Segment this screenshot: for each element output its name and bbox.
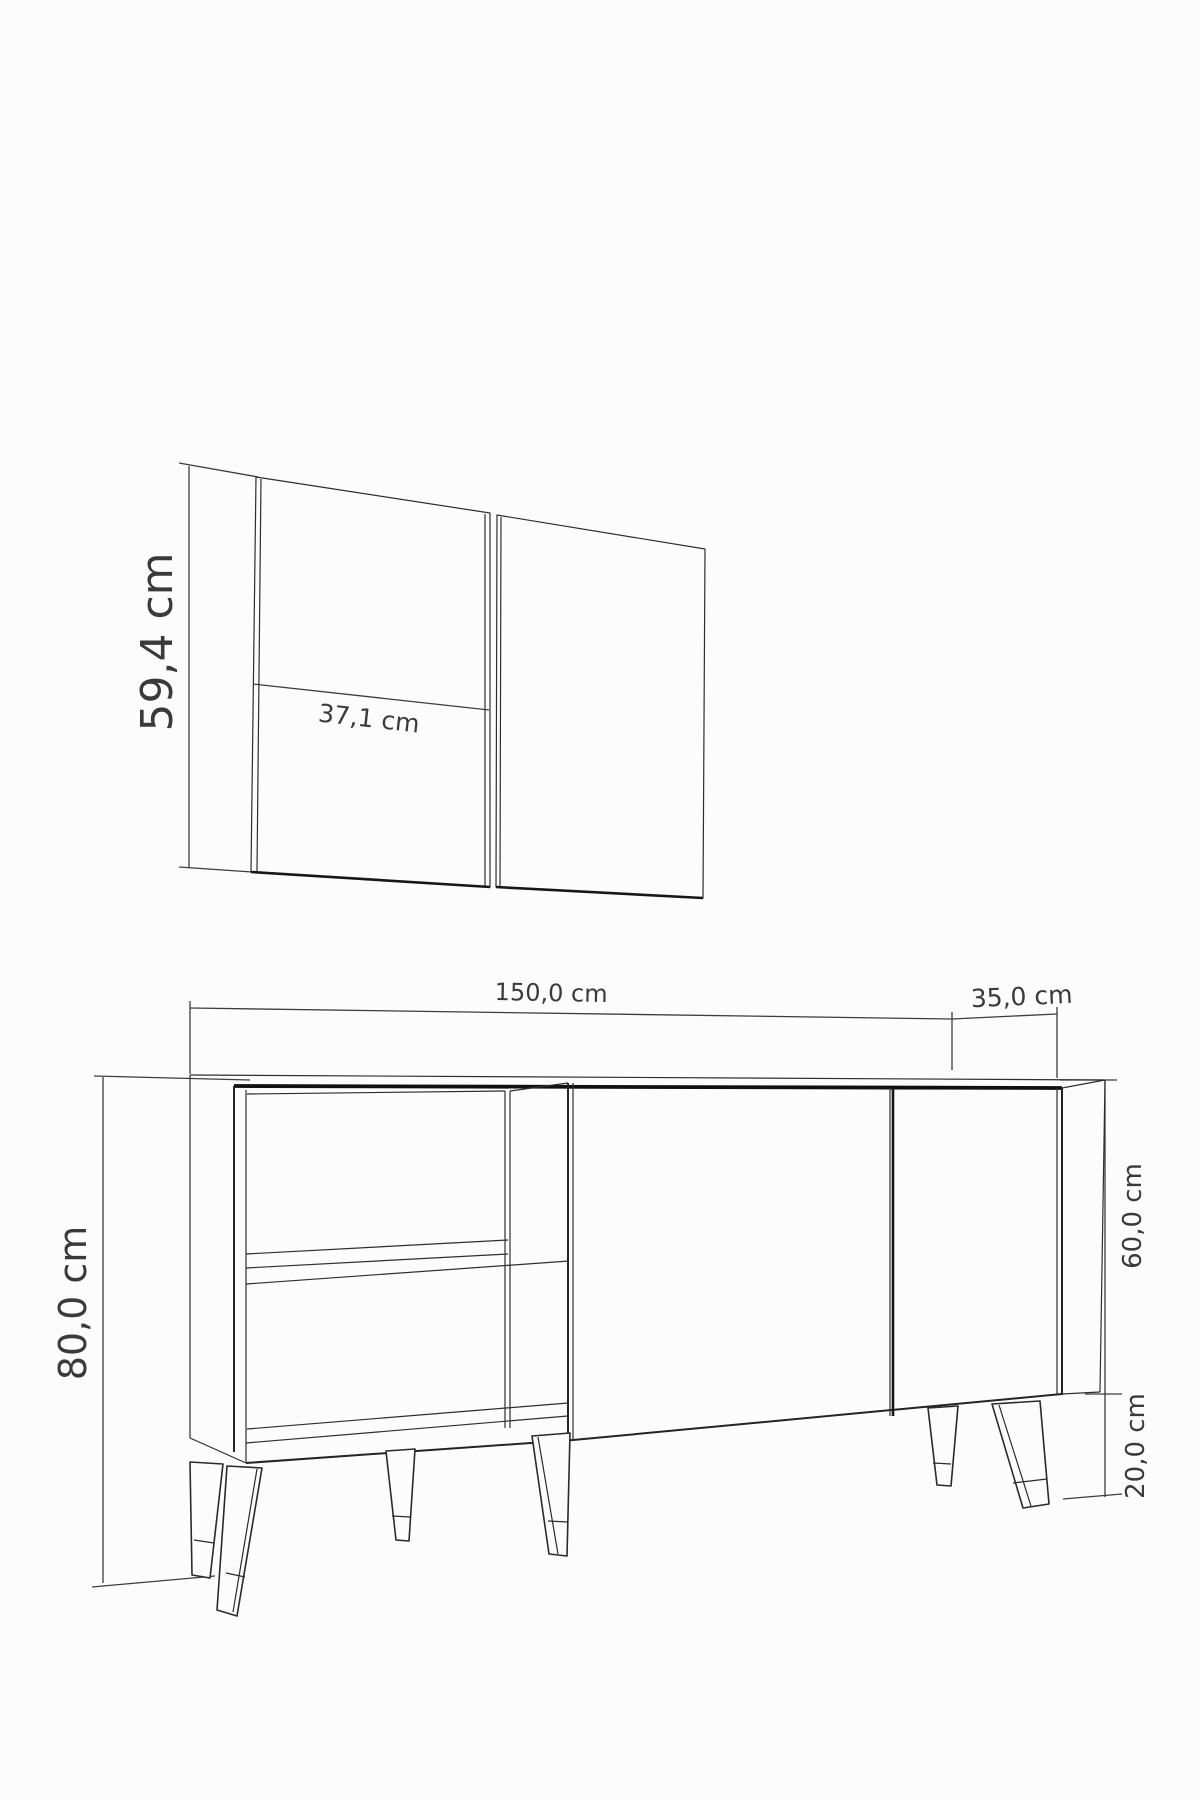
furniture-dimension-drawing: 59,4 cm 37,1 cm [0, 0, 1200, 1800]
cabinet-back-top-edge [190, 1075, 1105, 1080]
cabinet-depth-dimension-line [952, 1014, 1057, 1019]
cabinet-depth-dimension: 35,0 cm [952, 980, 1073, 1078]
shelf-top-back-line [246, 1240, 508, 1254]
cabinet-width-dimension-line [190, 1008, 952, 1019]
right-back-leg [928, 1406, 958, 1486]
cabinet-front-top-edge [234, 1086, 1062, 1088]
open-section-interior-top-line [247, 1091, 505, 1094]
total-height-tick-top [94, 1076, 250, 1080]
cabinet-depth-dimension-label: 35,0 cm [970, 980, 1073, 1013]
right-door-outline [496, 515, 705, 898]
leg-height-dimension: 20,0 cm [1063, 1393, 1151, 1499]
bottom-panel-back-line [247, 1403, 568, 1429]
middle-back-leg [386, 1449, 415, 1541]
carcass-height-dimension-label: 60,0 cm [1118, 1163, 1148, 1269]
bottom-panel-front-line [246, 1416, 568, 1443]
cabinet-back-right-edge [1100, 1080, 1105, 1392]
door-panels-front-view: 59,4 cm 37,1 cm [132, 463, 705, 898]
shelf-front-bottom-line [246, 1261, 569, 1284]
cabinet-total-height-dimension: 80,0 cm [51, 1076, 250, 1587]
panel-width-dimension-label: 37,1 cm [317, 699, 421, 739]
leg-height-dimension-label: 20,0 cm [1121, 1393, 1151, 1499]
technical-drawing-page: 59,4 cm 37,1 cm [0, 0, 1200, 1800]
left-door-bottom-edge [251, 872, 490, 887]
right-door-bottom-edge [496, 887, 703, 898]
back-left-leg [190, 1462, 223, 1578]
front-left-leg [217, 1466, 262, 1616]
cabinet-width-dimension: 150,0 cm [190, 978, 952, 1074]
middle-front-leg [532, 1433, 570, 1556]
cabinet-body [190, 1075, 1105, 1463]
leg-height-tick-bottom [1063, 1494, 1122, 1499]
left-door-left-edge-inner-line [257, 479, 261, 871]
left-door-panel: 37,1 cm [251, 477, 490, 887]
total-height-dimension-label: 80,0 cm [51, 1226, 95, 1381]
total-height-tick-bottom [92, 1576, 215, 1587]
left-side-bottom-edge [190, 1438, 246, 1463]
cabinet-width-dimension-label: 150,0 cm [494, 978, 607, 1008]
right-front-leg [992, 1401, 1049, 1508]
cabinet-top-right-corner-edge [1062, 1080, 1105, 1088]
panel-height-dimension: 59,4 cm [132, 463, 258, 872]
panel-height-dimension-label: 59,4 cm [132, 552, 183, 731]
cabinet-legs [190, 1401, 1049, 1616]
left-door-outline [251, 477, 490, 887]
right-door-left-edge-inner-line [500, 517, 501, 886]
right-door-panel [496, 515, 705, 898]
shelf-top-front-line [246, 1254, 508, 1268]
panel-height-dimension-tick-top [179, 463, 258, 477]
sideboard-perspective-view: 150,0 cm 35,0 cm 80,0 cm 60,0 cm [51, 978, 1151, 1616]
panel-height-dimension-tick-bottom [179, 867, 252, 872]
